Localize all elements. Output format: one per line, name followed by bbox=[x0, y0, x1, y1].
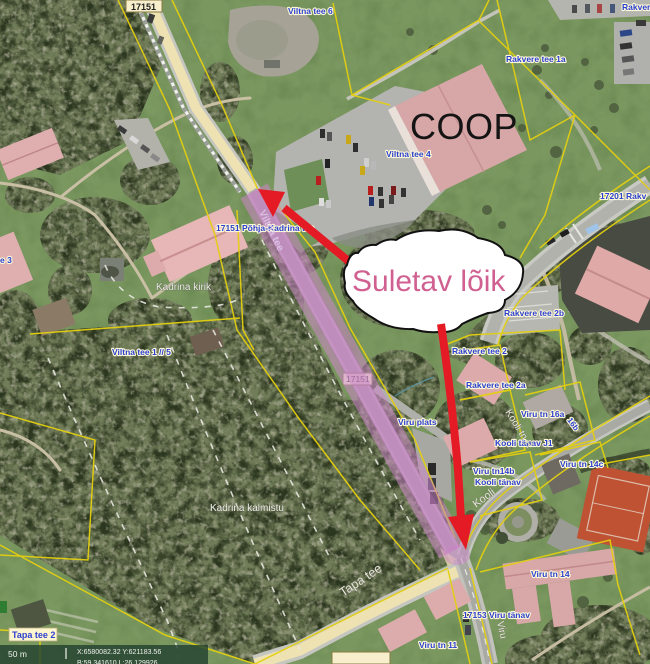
svg-text:Rakvere tee 2b: Rakvere tee 2b bbox=[504, 308, 564, 318]
svg-text:COOP: COOP bbox=[410, 106, 518, 147]
svg-text:Rakvere tee 1a: Rakvere tee 1a bbox=[506, 54, 566, 64]
svg-text:Rakvere tee 2a: Rakvere tee 2a bbox=[466, 380, 526, 390]
svg-text:17153 Viru tänav: 17153 Viru tänav bbox=[463, 610, 530, 620]
svg-text:17151: 17151 bbox=[131, 2, 156, 12]
svg-text:50 m: 50 m bbox=[8, 649, 27, 659]
svg-text:Viru tn 14: Viru tn 14 bbox=[531, 569, 570, 579]
svg-text:Viltna tee 6: Viltna tee 6 bbox=[288, 6, 333, 16]
svg-text:Kadrina kalmistu: Kadrina kalmistu bbox=[210, 503, 284, 514]
svg-text:B:59.341610 L:26.129926: B:59.341610 L:26.129926 bbox=[77, 660, 158, 664]
svg-text:Rakvere tee 2: Rakvere tee 2 bbox=[452, 346, 507, 356]
svg-text:Viru tn14b: Viru tn14b bbox=[473, 466, 514, 476]
svg-text:Suletav lõik: Suletav lõik bbox=[352, 265, 506, 298]
svg-text:Kooli tänav: Kooli tänav bbox=[475, 477, 521, 487]
svg-text:X:6580082.32 Y:621183.56: X:6580082.32 Y:621183.56 bbox=[77, 649, 161, 656]
svg-text:Tapa tee 2: Tapa tee 2 bbox=[12, 630, 55, 640]
svg-text:Viltna tee 4: Viltna tee 4 bbox=[386, 149, 431, 159]
svg-text:Kadrina kirik: Kadrina kirik bbox=[156, 282, 212, 293]
svg-text:Viru tn 14c: Viru tn 14c bbox=[560, 459, 604, 469]
svg-text:e 3: e 3 bbox=[0, 255, 12, 265]
svg-text:Rakver: Rakver bbox=[622, 2, 650, 12]
svg-text:Viru tn 16a: Viru tn 16a bbox=[521, 409, 565, 419]
svg-text:Viru tn 11: Viru tn 11 bbox=[419, 640, 457, 650]
svg-text:Viru plats: Viru plats bbox=[398, 417, 437, 427]
svg-text:17201 Rakv: 17201 Rakv bbox=[600, 191, 647, 201]
svg-text:Viltna tee 1 // 5: Viltna tee 1 // 5 bbox=[112, 347, 171, 357]
